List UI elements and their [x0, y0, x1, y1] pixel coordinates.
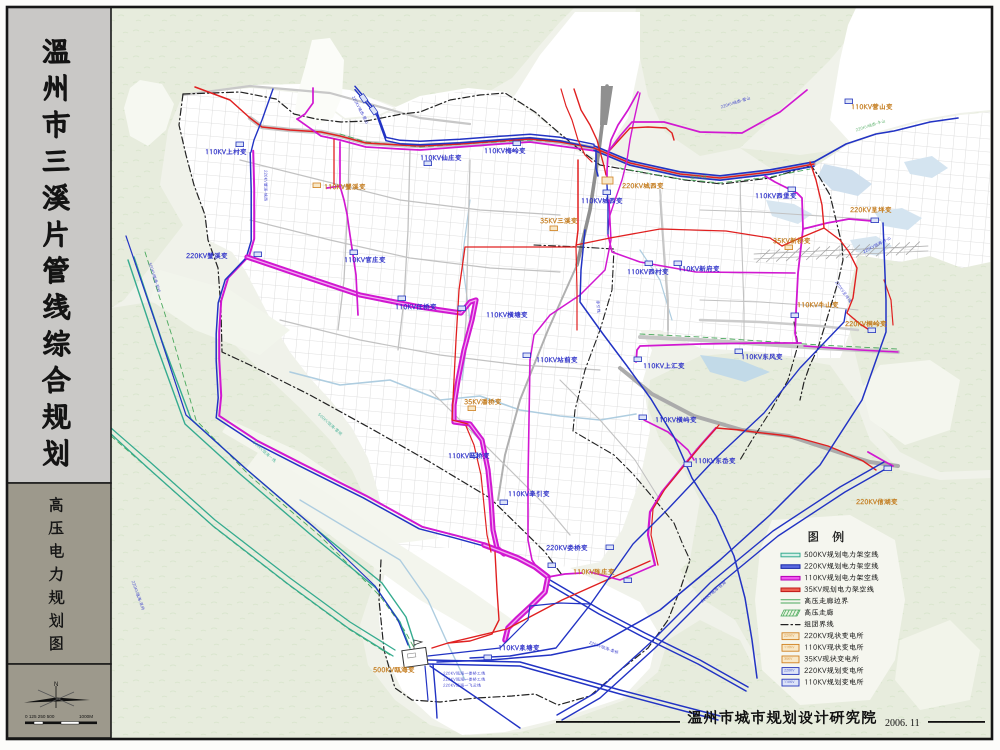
svg-text:1000M: 1000M: [79, 714, 93, 719]
svg-text:0 125 250 500: 0 125 250 500: [25, 714, 55, 719]
svg-text:2006. 11: 2006. 11: [885, 718, 920, 729]
